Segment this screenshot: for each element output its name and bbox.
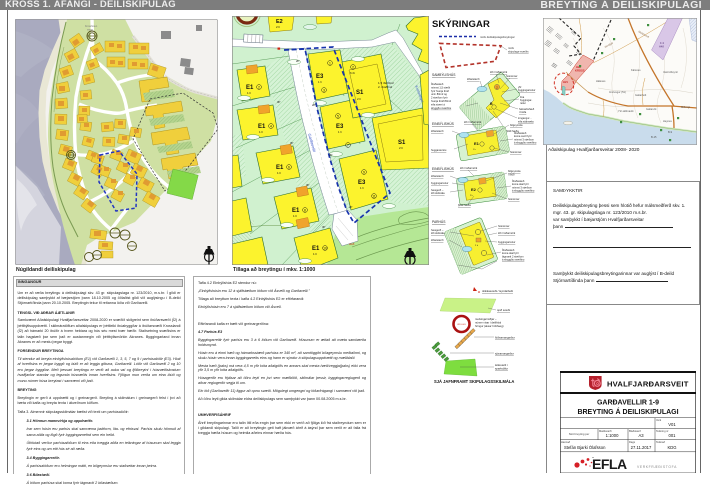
svg-text:F-3: F-3 <box>660 41 664 45</box>
svg-text:2: 2 <box>258 85 260 89</box>
svg-text:húsnúmer: húsnúmer <box>498 224 510 228</box>
svg-text:11: 11 <box>372 194 376 198</box>
svg-text:sjóvarnargarður: sjóvarnargarður <box>495 351 514 356</box>
svg-text:1 h: 1 h <box>247 91 252 95</box>
svg-text:Heynes: Heynes <box>663 119 672 123</box>
svg-text:útilokasvæði / leyndarbelti: útilokasvæði / leyndarbelti <box>482 288 513 293</box>
svg-text:6 íb: 6 íb <box>350 71 355 75</box>
svg-text:bílgeymsla: bílgeymsla <box>508 169 521 173</box>
svg-text:Hálsnes: Hálsnes <box>596 79 606 83</box>
svg-text:HVALFJARÐARSVEIT: HVALFJARÐARSVEIT <box>607 380 689 389</box>
svg-text:númer vísar í deilihluti: númer vísar í deilihluti <box>475 320 502 324</box>
svg-text:1:1000: 1:1000 <box>606 433 619 438</box>
svg-text:stöð: stöð <box>349 241 355 246</box>
svg-text:2 h: 2 h <box>399 146 404 150</box>
svg-text:reitur: reitur <box>520 101 526 105</box>
svg-text:7: 7 <box>347 143 349 147</box>
svg-text:5: 5 <box>337 114 339 118</box>
svg-text:2: 2 <box>352 65 354 69</box>
svg-text:GARÐAVELLIR 1-9: GARÐAVELLIR 1-9 <box>597 400 659 407</box>
svg-text:1 h: 1 h <box>473 149 476 151</box>
svg-text:2P: 2P <box>349 205 353 209</box>
svg-text:Stefán Bjarki Ólafsson: Stefán Bjarki Ólafsson <box>564 445 606 450</box>
svg-text:mörk deiliskipulagsbreytingar: mörk deiliskipulagsbreytingar <box>480 35 515 39</box>
svg-text:1 h: 1 h <box>338 130 342 134</box>
svg-text:lóð / lóðarmörk: lóð / lóðarmörk <box>498 230 516 235</box>
svg-text:H21: H21 <box>563 80 568 84</box>
svg-text:2 h: 2 h <box>470 195 473 197</box>
svg-text:EFLA: EFLA <box>592 456 627 472</box>
svg-text:Teikning nr: Teikning nr <box>656 429 669 433</box>
svg-text:lóðarstærð: lóðarstærð <box>467 76 480 81</box>
svg-text:1 h: 1 h <box>293 214 298 218</box>
svg-text:2P: 2P <box>296 59 300 63</box>
svg-text:V01: V01 <box>668 422 676 427</box>
svg-text:1: 1 <box>329 61 331 65</box>
svg-text:E2: E2 <box>471 187 477 192</box>
svg-text:1 h: 1 h <box>313 252 318 256</box>
svg-text:lóðarstærð: lóðarstærð <box>431 128 444 133</box>
svg-text:3P: 3P <box>277 100 281 104</box>
svg-text:H48: H48 <box>659 44 664 48</box>
svg-text:hugganærstu: hugganærstu <box>431 148 447 152</box>
svg-text:sparkvöllur: sparkvöllur <box>495 366 508 370</box>
svg-text:2. íbúð/m2: 2. íbúð/m2 <box>378 84 393 89</box>
svg-text:lóð / lóðarmörk: lóð / lóðarmörk <box>460 165 478 170</box>
svg-text:Galtarvík: Galtarvík <box>646 107 657 111</box>
svg-text:Stöt breyting per: Stöt breyting per <box>569 432 590 436</box>
svg-text:BREYTING Á DEILISKIPULAGI: BREYTING Á DEILISKIPULAGI <box>577 407 678 416</box>
svg-text:Íbúðastæð: Íbúðastæð <box>431 81 444 86</box>
svg-text:byggingarreitur: byggingarreitur <box>518 88 535 92</box>
svg-text:KDG: KDG <box>667 445 676 450</box>
svg-text:Ytri-Hólmavík: Ytri-Hólmavík <box>618 109 634 113</box>
svg-text:mörk: mörk <box>508 46 515 50</box>
svg-text:10: 10 <box>323 246 327 250</box>
svg-text:3P: 3P <box>322 225 326 229</box>
svg-text:lóðarstærð: lóðarstærð <box>431 237 444 242</box>
svg-text:2P: 2P <box>329 153 333 157</box>
svg-text:lóðarstærð: lóðarstærð <box>431 173 444 178</box>
svg-text:SAMBÝLISHÚS: SAMBÝLISHÚS <box>432 73 456 77</box>
svg-text:Verk: Verk <box>656 418 662 422</box>
svg-text:4: 4 <box>270 124 272 128</box>
svg-text:SJÁ JAFNFRAMT SKIPULAGSSKILMÁ: SJÁ JAFNFRAMT SKIPULAGSSKILMÁLA <box>434 379 514 384</box>
svg-text:húsnúmer: húsnúmer <box>510 150 522 154</box>
svg-text:9: 9 <box>363 170 365 174</box>
svg-text:2P: 2P <box>312 103 316 107</box>
svg-text:3P: 3P <box>306 183 310 187</box>
svg-text:húsnúmer: húsnúmer <box>508 197 520 201</box>
svg-text:B-9: B-9 <box>668 130 673 134</box>
svg-text:Galtarholt: Galtarholt <box>635 93 647 97</box>
svg-text:EINBÝLISHÚS: EINBÝLISHÚS <box>432 167 455 171</box>
svg-text:1 h: 1 h <box>360 186 364 190</box>
svg-text:A3: A3 <box>638 433 644 438</box>
svg-text:Dags: Dags <box>629 440 636 444</box>
svg-text:bílgeymsla: bílgeymsla <box>510 123 523 127</box>
svg-text:1 h: 1 h <box>259 130 264 134</box>
svg-text:KRO-001: KRO-001 <box>457 324 466 326</box>
svg-text:lóð / lóðarmörk: lóð / lóðarmörk <box>490 69 508 74</box>
svg-text:byggingarreitur: byggingarreitur <box>431 181 448 185</box>
svg-text:opið svæði: opið svæði <box>497 307 510 312</box>
svg-text:merkingarmiðjar –: merkingarmiðjar – <box>475 316 497 321</box>
svg-text:8: 8 <box>304 208 306 212</box>
svg-text:KROSS: KROSS <box>575 68 585 72</box>
svg-text:E1: E1 <box>474 141 480 146</box>
svg-text:001: 001 <box>669 433 677 438</box>
svg-text:2 h: 2 h <box>276 25 281 29</box>
svg-text:Vestri-Reynir: Vestri-Reynir <box>663 70 678 74</box>
svg-text:6: 6 <box>288 165 290 169</box>
svg-text:flóðvarnargarður: flóðvarnargarður <box>495 335 515 340</box>
svg-text:B: B <box>490 102 493 106</box>
svg-text:húsnúmer: húsnúmer <box>506 74 518 78</box>
svg-text:VERKFRÆÐISTOFA: VERKFRÆÐISTOFA <box>637 465 677 469</box>
svg-text:1 h: 1 h <box>318 80 322 84</box>
svg-text:EINBÝLISHÚS: EINBÝLISHÚS <box>432 122 455 126</box>
svg-text:1 h: 1 h <box>489 109 492 111</box>
svg-text:Innrivegur (51): Innrivegur (51) <box>609 90 626 94</box>
svg-text:S1: S1 <box>356 90 364 96</box>
svg-text:3P: 3P <box>290 141 294 145</box>
svg-text:byggingarreitur: byggingarreitur <box>498 240 515 244</box>
svg-text:27.11.2017: 27.11.2017 <box>631 445 652 450</box>
svg-text:inngangur...: inngangur... <box>518 116 532 120</box>
svg-text:Kársnes: Kársnes <box>631 68 641 72</box>
svg-text:SKÝRINGAR: SKÝRINGAR <box>432 18 490 30</box>
svg-text:leiksvæði í: leiksvæði í <box>495 362 508 367</box>
svg-text:PARHÚS: PARHÚS <box>432 220 446 224</box>
svg-text:2 h: 2 h <box>357 97 362 101</box>
svg-text:und. 80m2 og: und. 80m2 og <box>431 92 447 96</box>
svg-text:3: 3 <box>323 88 325 92</box>
svg-text:1 h: 1 h <box>277 171 282 175</box>
svg-text:B-15: B-15 <box>651 135 657 139</box>
